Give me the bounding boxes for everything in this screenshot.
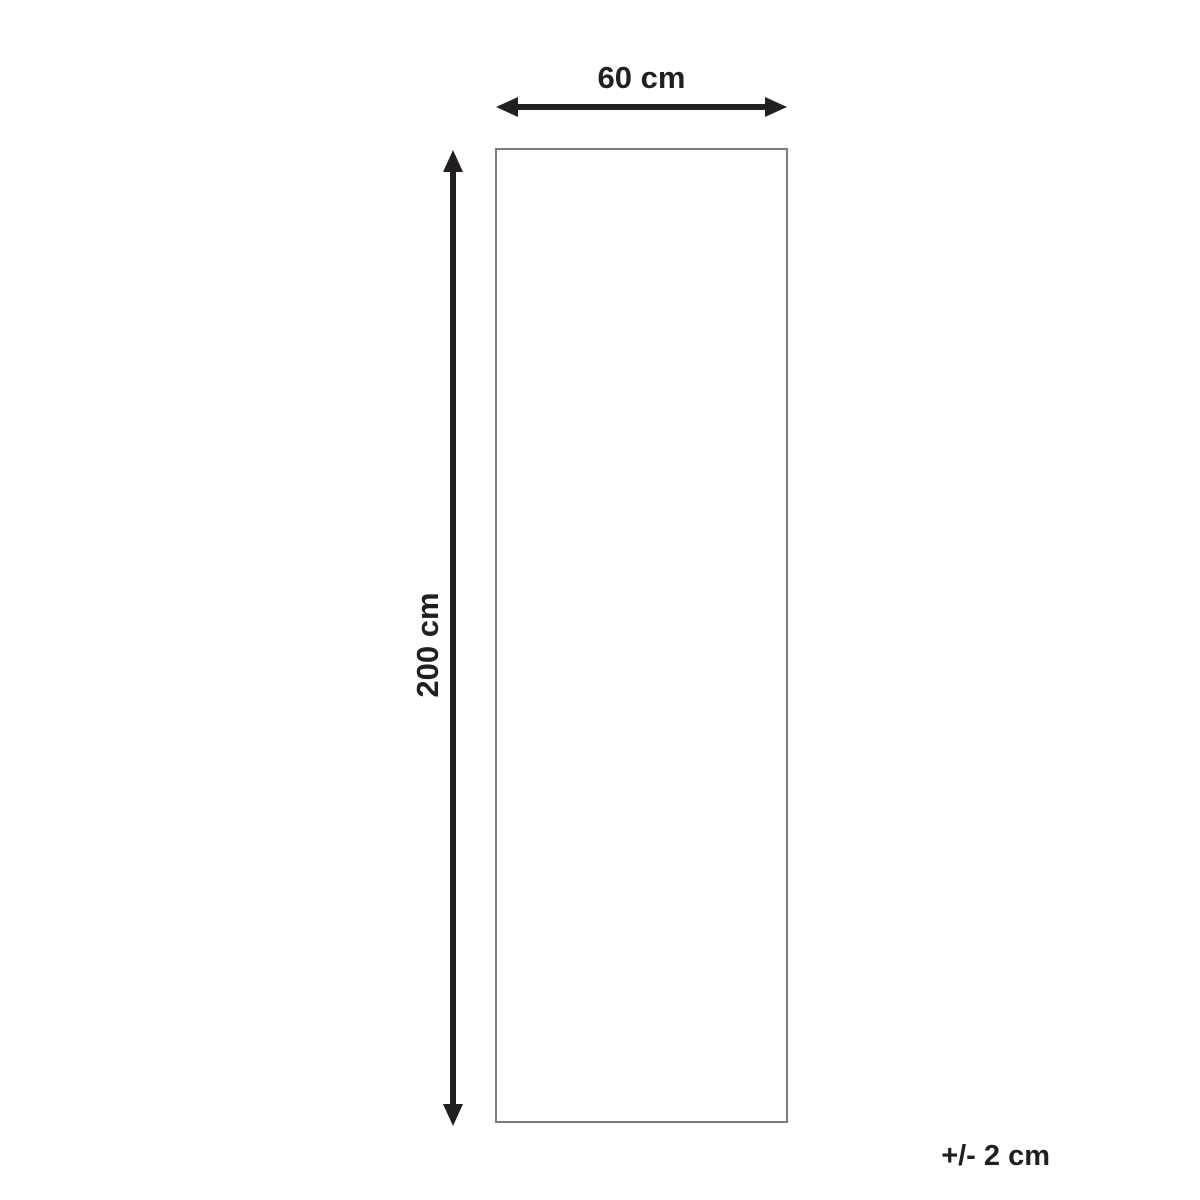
height-arrow-line [450,166,456,1110]
dimension-diagram: 60 cm 200 cm +/- 2 cm [0,0,1200,1200]
width-dimension-arrow [496,96,787,118]
width-dimension-label: 60 cm [496,60,787,96]
height-dimension-label: 200 cm [410,592,446,697]
height-dimension-arrow [442,150,464,1126]
tolerance-label: +/- 2 cm [941,1140,1050,1173]
arrowhead-bottom [443,1104,463,1126]
width-arrow-line [512,104,771,110]
product-outline-rectangle [495,148,788,1123]
arrowhead-right [765,97,787,117]
